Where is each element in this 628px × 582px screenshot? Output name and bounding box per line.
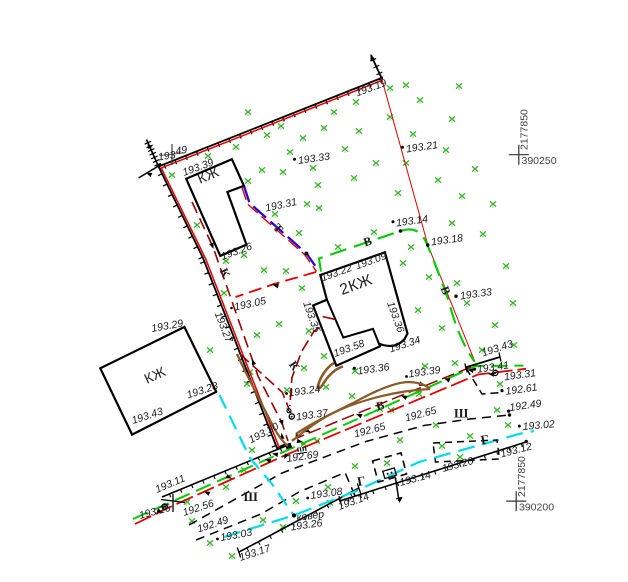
svg-text:390250: 390250 <box>522 155 557 167</box>
svg-text:193: 193 <box>157 149 176 163</box>
svg-text:2177850: 2177850 <box>519 109 531 150</box>
svg-text:49: 49 <box>175 144 188 158</box>
svg-text:2177850: 2177850 <box>516 456 528 497</box>
svg-text:Ш: Ш <box>244 489 259 504</box>
svg-text:Ш: Ш <box>454 406 469 421</box>
svg-text:390200: 390200 <box>519 502 554 514</box>
